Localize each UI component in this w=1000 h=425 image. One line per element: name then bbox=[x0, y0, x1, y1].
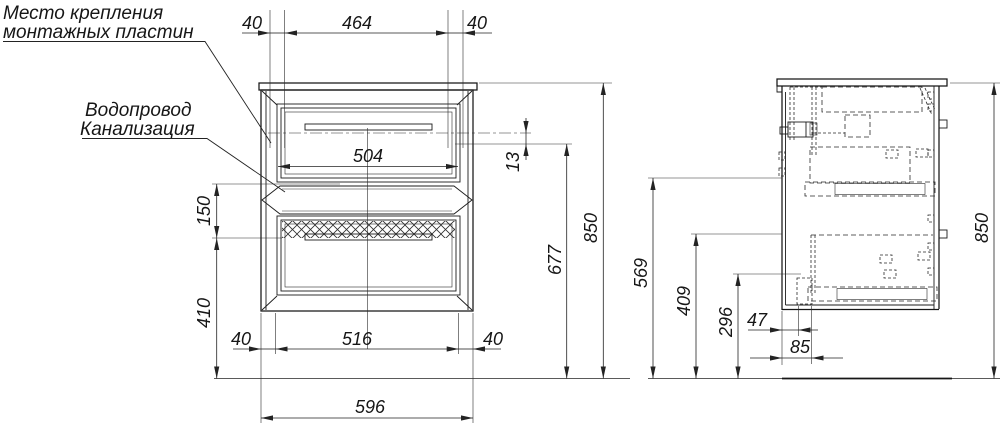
dim-label-569: 569 bbox=[631, 258, 651, 288]
mounting-plates-label-line2: монтажных пластин bbox=[3, 22, 194, 43]
dim-label-top-40-left: 40 bbox=[242, 13, 262, 33]
dim-label-bottom-40-left: 40 bbox=[231, 329, 251, 349]
dim-label-516: 516 bbox=[342, 329, 373, 349]
dim-label-85: 85 bbox=[790, 337, 811, 357]
dim-label-850-front: 850 bbox=[581, 213, 601, 243]
background bbox=[0, 0, 1000, 425]
dim-label-296: 296 bbox=[716, 306, 736, 338]
dim-label-13: 13 bbox=[503, 152, 523, 172]
plumbing-label-line1: Водопровод bbox=[85, 100, 191, 121]
dim-label-top-40-right: 40 bbox=[467, 13, 487, 33]
dim-label-47: 47 bbox=[747, 310, 768, 330]
dim-label-850-side: 850 bbox=[972, 213, 992, 243]
dim-label-150: 150 bbox=[194, 196, 214, 226]
dim-label-top-464: 464 bbox=[342, 13, 372, 33]
dim-label-bottom-40-right: 40 bbox=[483, 329, 503, 349]
dim-label-504: 504 bbox=[353, 146, 383, 166]
vanity-cabinet-drawing: 40 464 40 504 13 150 410 bbox=[0, 0, 1000, 425]
plumbing-label-line2: Канализация bbox=[80, 119, 195, 140]
dim-label-410: 410 bbox=[194, 298, 214, 328]
technical-drawing-page: 40 464 40 504 13 150 410 bbox=[0, 0, 1000, 425]
dim-label-596: 596 bbox=[355, 397, 386, 417]
dim-label-677: 677 bbox=[545, 244, 565, 275]
mounting-plates-label-line1: Место крепления bbox=[3, 3, 163, 24]
dim-label-409: 409 bbox=[674, 286, 694, 316]
